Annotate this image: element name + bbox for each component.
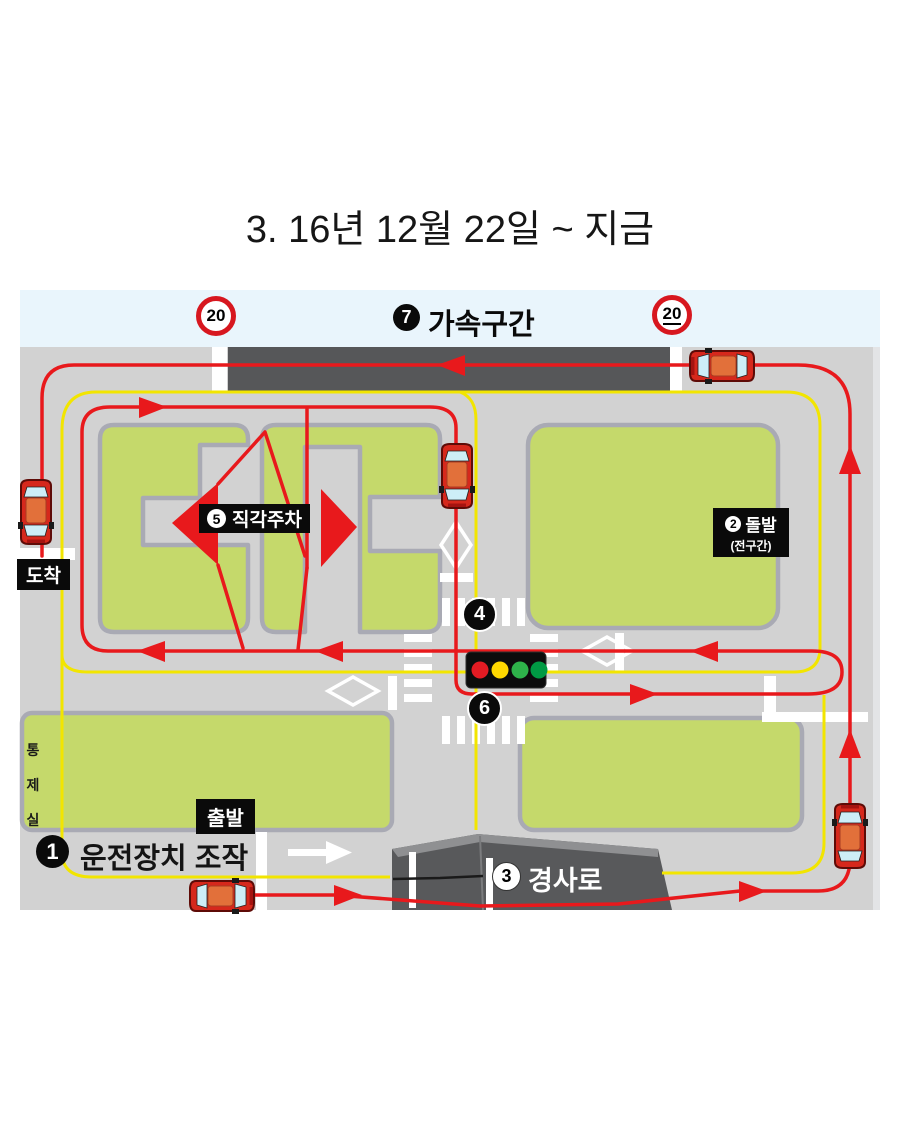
checkpoint-5-badge: 5 — [207, 509, 226, 528]
speed-limit-sign-right: 20 — [652, 295, 692, 335]
checkpoint-3-badge: 3 — [492, 862, 521, 891]
speed-limit-value: 20 — [207, 306, 226, 326]
car-left-finish — [18, 480, 54, 544]
control-room-label: 통제실 — [23, 733, 43, 838]
acceleration-strip — [212, 347, 682, 392]
checkpoint-4-badge: 4 — [462, 597, 497, 632]
checkpoint-3-label: 경사로 — [528, 859, 603, 898]
checkpoint-7-badge: 7 — [393, 304, 420, 331]
traffic-light — [466, 652, 548, 688]
finish-label-box: 도착 — [17, 559, 70, 590]
start-label-box: 출발 — [196, 799, 255, 834]
speed-limit-value: 20 — [663, 305, 682, 325]
checkpoint-5-label-box: 5 직각주차 — [199, 504, 310, 533]
page-title: 3. 16년 12월 22일 ~ 지금 — [0, 198, 900, 253]
car-top-right — [690, 348, 754, 384]
car-center — [439, 444, 475, 508]
checkpoint-1-badge: 1 — [36, 835, 69, 868]
car-right — [832, 804, 868, 868]
checkpoint-2-badge: 2 — [725, 516, 741, 532]
car-bottom-start — [190, 878, 254, 914]
checkpoint-2-label-box: 2 돌발 (전구간) — [713, 508, 789, 557]
course-map-svg — [0, 0, 900, 1125]
checkpoint-7-label: 가속구간 — [428, 301, 535, 343]
speed-limit-sign-left: 20 — [196, 296, 236, 336]
grass-block-bottom-right — [520, 718, 802, 830]
course-diagram-page: 3. 16년 12월 22일 ~ 지금 20 20 7 가속구간 2 돌발 (전… — [0, 0, 900, 1125]
checkpoint-5-label: 직각주차 — [232, 505, 302, 532]
checkpoint-2-label: 돌발 — [745, 511, 776, 536]
checkpoint-6-badge: 6 — [467, 691, 502, 726]
checkpoint-2-sublabel: (전구간) — [730, 537, 771, 554]
checkpoint-1-label: 운전장치 조작 — [80, 835, 248, 877]
